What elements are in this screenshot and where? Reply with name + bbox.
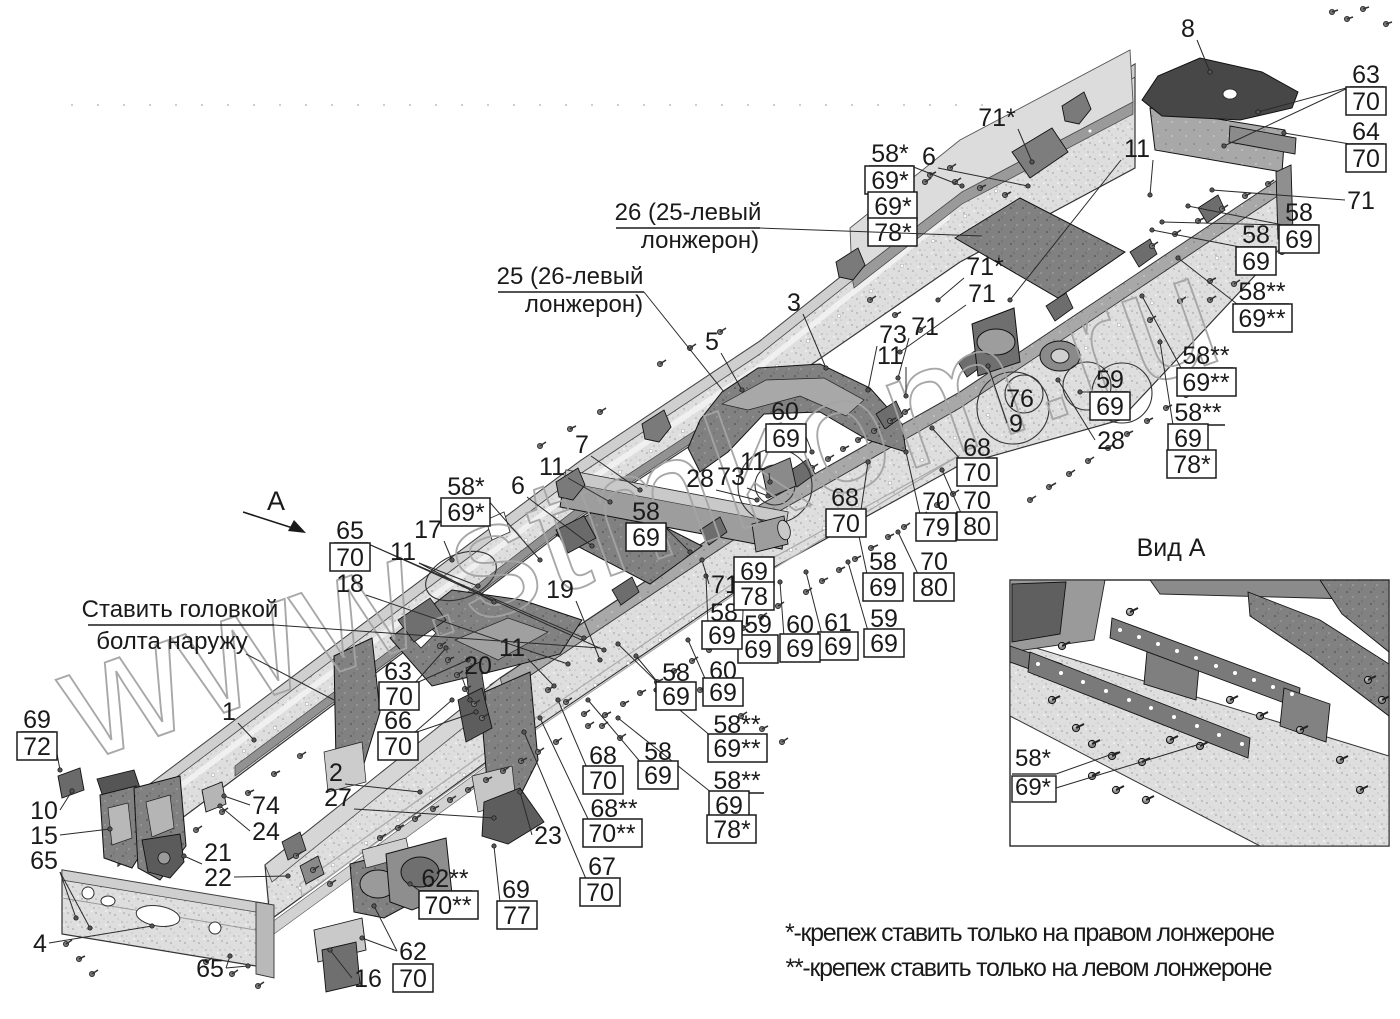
svg-text:58: 58 bbox=[632, 498, 660, 526]
svg-text:72: 72 bbox=[23, 733, 51, 761]
svg-text:60: 60 bbox=[771, 398, 799, 426]
svg-text:25 (26-левый: 25 (26-левый bbox=[497, 263, 644, 290]
svg-text:70: 70 bbox=[586, 879, 614, 907]
svg-text:65: 65 bbox=[30, 847, 58, 875]
svg-text:80: 80 bbox=[963, 513, 991, 541]
svg-text:80: 80 bbox=[920, 574, 948, 602]
svg-text:76: 76 bbox=[1006, 385, 1034, 413]
svg-text:69: 69 bbox=[824, 633, 852, 661]
svg-text:8: 8 bbox=[1181, 15, 1195, 43]
svg-text:77: 77 bbox=[503, 902, 531, 930]
svg-text:26 (25-левый: 26 (25-левый bbox=[615, 199, 762, 226]
svg-text:58: 58 bbox=[1285, 199, 1313, 227]
svg-text:71*: 71* bbox=[966, 253, 1004, 281]
svg-text:69*: 69* bbox=[1015, 774, 1051, 801]
svg-text:11: 11 bbox=[740, 448, 766, 476]
svg-text:5: 5 bbox=[705, 328, 719, 356]
svg-text:69: 69 bbox=[632, 524, 660, 552]
svg-text:78*: 78* bbox=[713, 816, 751, 844]
svg-text:болта наружу: болта наружу bbox=[96, 628, 248, 655]
svg-text:58: 58 bbox=[1242, 221, 1270, 249]
svg-text:69: 69 bbox=[786, 635, 814, 663]
svg-text:71: 71 bbox=[911, 313, 939, 341]
svg-text:69**: 69** bbox=[1238, 305, 1286, 333]
svg-text:71: 71 bbox=[968, 280, 996, 308]
svg-text:70: 70 bbox=[963, 487, 991, 515]
svg-text:70**: 70** bbox=[588, 820, 636, 848]
svg-text:27: 27 bbox=[324, 784, 352, 812]
svg-text:64: 64 bbox=[1352, 118, 1380, 146]
svg-text:58: 58 bbox=[869, 548, 897, 576]
svg-text:71*: 71* bbox=[978, 104, 1016, 132]
svg-text:28: 28 bbox=[1097, 427, 1125, 455]
svg-text:69: 69 bbox=[1096, 393, 1124, 421]
svg-text:21: 21 bbox=[204, 839, 232, 867]
svg-text:69: 69 bbox=[1174, 425, 1202, 453]
svg-text:71: 71 bbox=[1347, 187, 1375, 215]
svg-text:69: 69 bbox=[23, 706, 51, 734]
svg-text:69**: 69** bbox=[1182, 369, 1230, 397]
svg-text:70: 70 bbox=[385, 683, 413, 711]
svg-text:66: 66 bbox=[384, 707, 412, 735]
svg-text:15: 15 bbox=[30, 822, 58, 850]
svg-text:Ставить головкой: Ставить головкой bbox=[82, 596, 279, 623]
svg-text:58*: 58* bbox=[447, 473, 485, 501]
svg-text:69: 69 bbox=[644, 762, 672, 790]
svg-text:62: 62 bbox=[399, 938, 427, 966]
svg-text:74: 74 bbox=[252, 792, 280, 820]
svg-text:9: 9 bbox=[1009, 410, 1023, 438]
svg-text:70: 70 bbox=[589, 767, 617, 795]
svg-text:69: 69 bbox=[744, 636, 772, 664]
svg-text:4: 4 bbox=[33, 930, 47, 958]
svg-text:69: 69 bbox=[662, 683, 690, 711]
svg-text:6: 6 bbox=[922, 143, 936, 171]
svg-text:70: 70 bbox=[384, 733, 412, 761]
svg-text:59: 59 bbox=[1096, 366, 1124, 394]
svg-text:*-крепеж ставить только на пра: *-крепеж ставить только на правом лонжер… bbox=[785, 919, 1275, 947]
svg-text:22: 22 bbox=[204, 864, 232, 892]
svg-text:24: 24 bbox=[252, 818, 280, 846]
svg-text:6: 6 bbox=[511, 472, 525, 500]
svg-text:**-крепеж ставить только на ле: **-крепеж ставить только на левом лонжер… bbox=[786, 954, 1273, 982]
svg-text:17: 17 bbox=[414, 516, 442, 544]
svg-text:19: 19 bbox=[546, 576, 574, 604]
svg-text:70: 70 bbox=[336, 544, 364, 572]
svg-text:69**: 69** bbox=[713, 735, 761, 763]
svg-text:68: 68 bbox=[831, 484, 859, 512]
svg-text:Вид А: Вид А bbox=[1137, 534, 1206, 562]
svg-text:3: 3 bbox=[787, 289, 801, 317]
svg-text:лонжерон): лонжерон) bbox=[525, 291, 643, 318]
svg-text:69: 69 bbox=[1285, 226, 1313, 254]
svg-text:69: 69 bbox=[870, 630, 898, 658]
svg-text:58*: 58* bbox=[1015, 745, 1051, 772]
svg-text:63: 63 bbox=[1352, 61, 1380, 89]
svg-text:2: 2 bbox=[329, 759, 343, 787]
svg-text:70**: 70** bbox=[424, 892, 472, 920]
svg-text:69*: 69* bbox=[871, 167, 909, 195]
svg-text:11: 11 bbox=[1124, 135, 1150, 163]
svg-text:58**: 58** bbox=[1174, 399, 1222, 427]
svg-text:11: 11 bbox=[499, 634, 525, 662]
svg-text:11: 11 bbox=[539, 453, 565, 481]
svg-text:62**: 62** bbox=[421, 865, 469, 893]
svg-text:65: 65 bbox=[336, 517, 364, 545]
svg-text:69: 69 bbox=[709, 679, 737, 707]
svg-text:58*: 58* bbox=[871, 140, 909, 168]
svg-text:16: 16 bbox=[354, 965, 382, 993]
svg-text:70: 70 bbox=[832, 510, 860, 538]
svg-text:70: 70 bbox=[920, 548, 948, 576]
svg-text:78*: 78* bbox=[1173, 451, 1211, 479]
svg-text:69*: 69* bbox=[874, 193, 912, 221]
svg-text:1: 1 bbox=[222, 698, 236, 726]
svg-text:69: 69 bbox=[502, 876, 530, 904]
svg-text:11: 11 bbox=[877, 342, 903, 370]
svg-text:69: 69 bbox=[1242, 248, 1270, 276]
svg-text:58**: 58** bbox=[1238, 278, 1286, 306]
svg-text:28: 28 bbox=[686, 465, 714, 493]
svg-text:69: 69 bbox=[772, 425, 800, 453]
svg-text:18: 18 bbox=[336, 570, 364, 598]
svg-text:70: 70 bbox=[963, 459, 991, 487]
svg-text:70: 70 bbox=[1352, 88, 1380, 116]
svg-text:70: 70 bbox=[1352, 145, 1380, 173]
svg-text:10: 10 bbox=[30, 797, 58, 825]
svg-text:70: 70 bbox=[922, 488, 950, 516]
svg-text:58**: 58** bbox=[1182, 342, 1230, 370]
svg-text:А: А bbox=[267, 486, 285, 516]
svg-text:69: 69 bbox=[708, 622, 736, 650]
svg-text:11: 11 bbox=[390, 538, 416, 566]
svg-text:7: 7 bbox=[575, 431, 589, 459]
svg-text:78: 78 bbox=[740, 583, 768, 611]
svg-text:69*: 69* bbox=[447, 499, 485, 527]
svg-text:20: 20 bbox=[464, 652, 492, 680]
svg-text:67: 67 bbox=[588, 853, 616, 881]
svg-text:23: 23 bbox=[534, 822, 562, 850]
svg-text:69: 69 bbox=[869, 574, 897, 602]
svg-text:65: 65 bbox=[196, 955, 224, 983]
svg-text:79: 79 bbox=[922, 514, 950, 542]
svg-text:лонжерон): лонжерон) bbox=[641, 227, 759, 254]
svg-text:70: 70 bbox=[399, 965, 427, 993]
